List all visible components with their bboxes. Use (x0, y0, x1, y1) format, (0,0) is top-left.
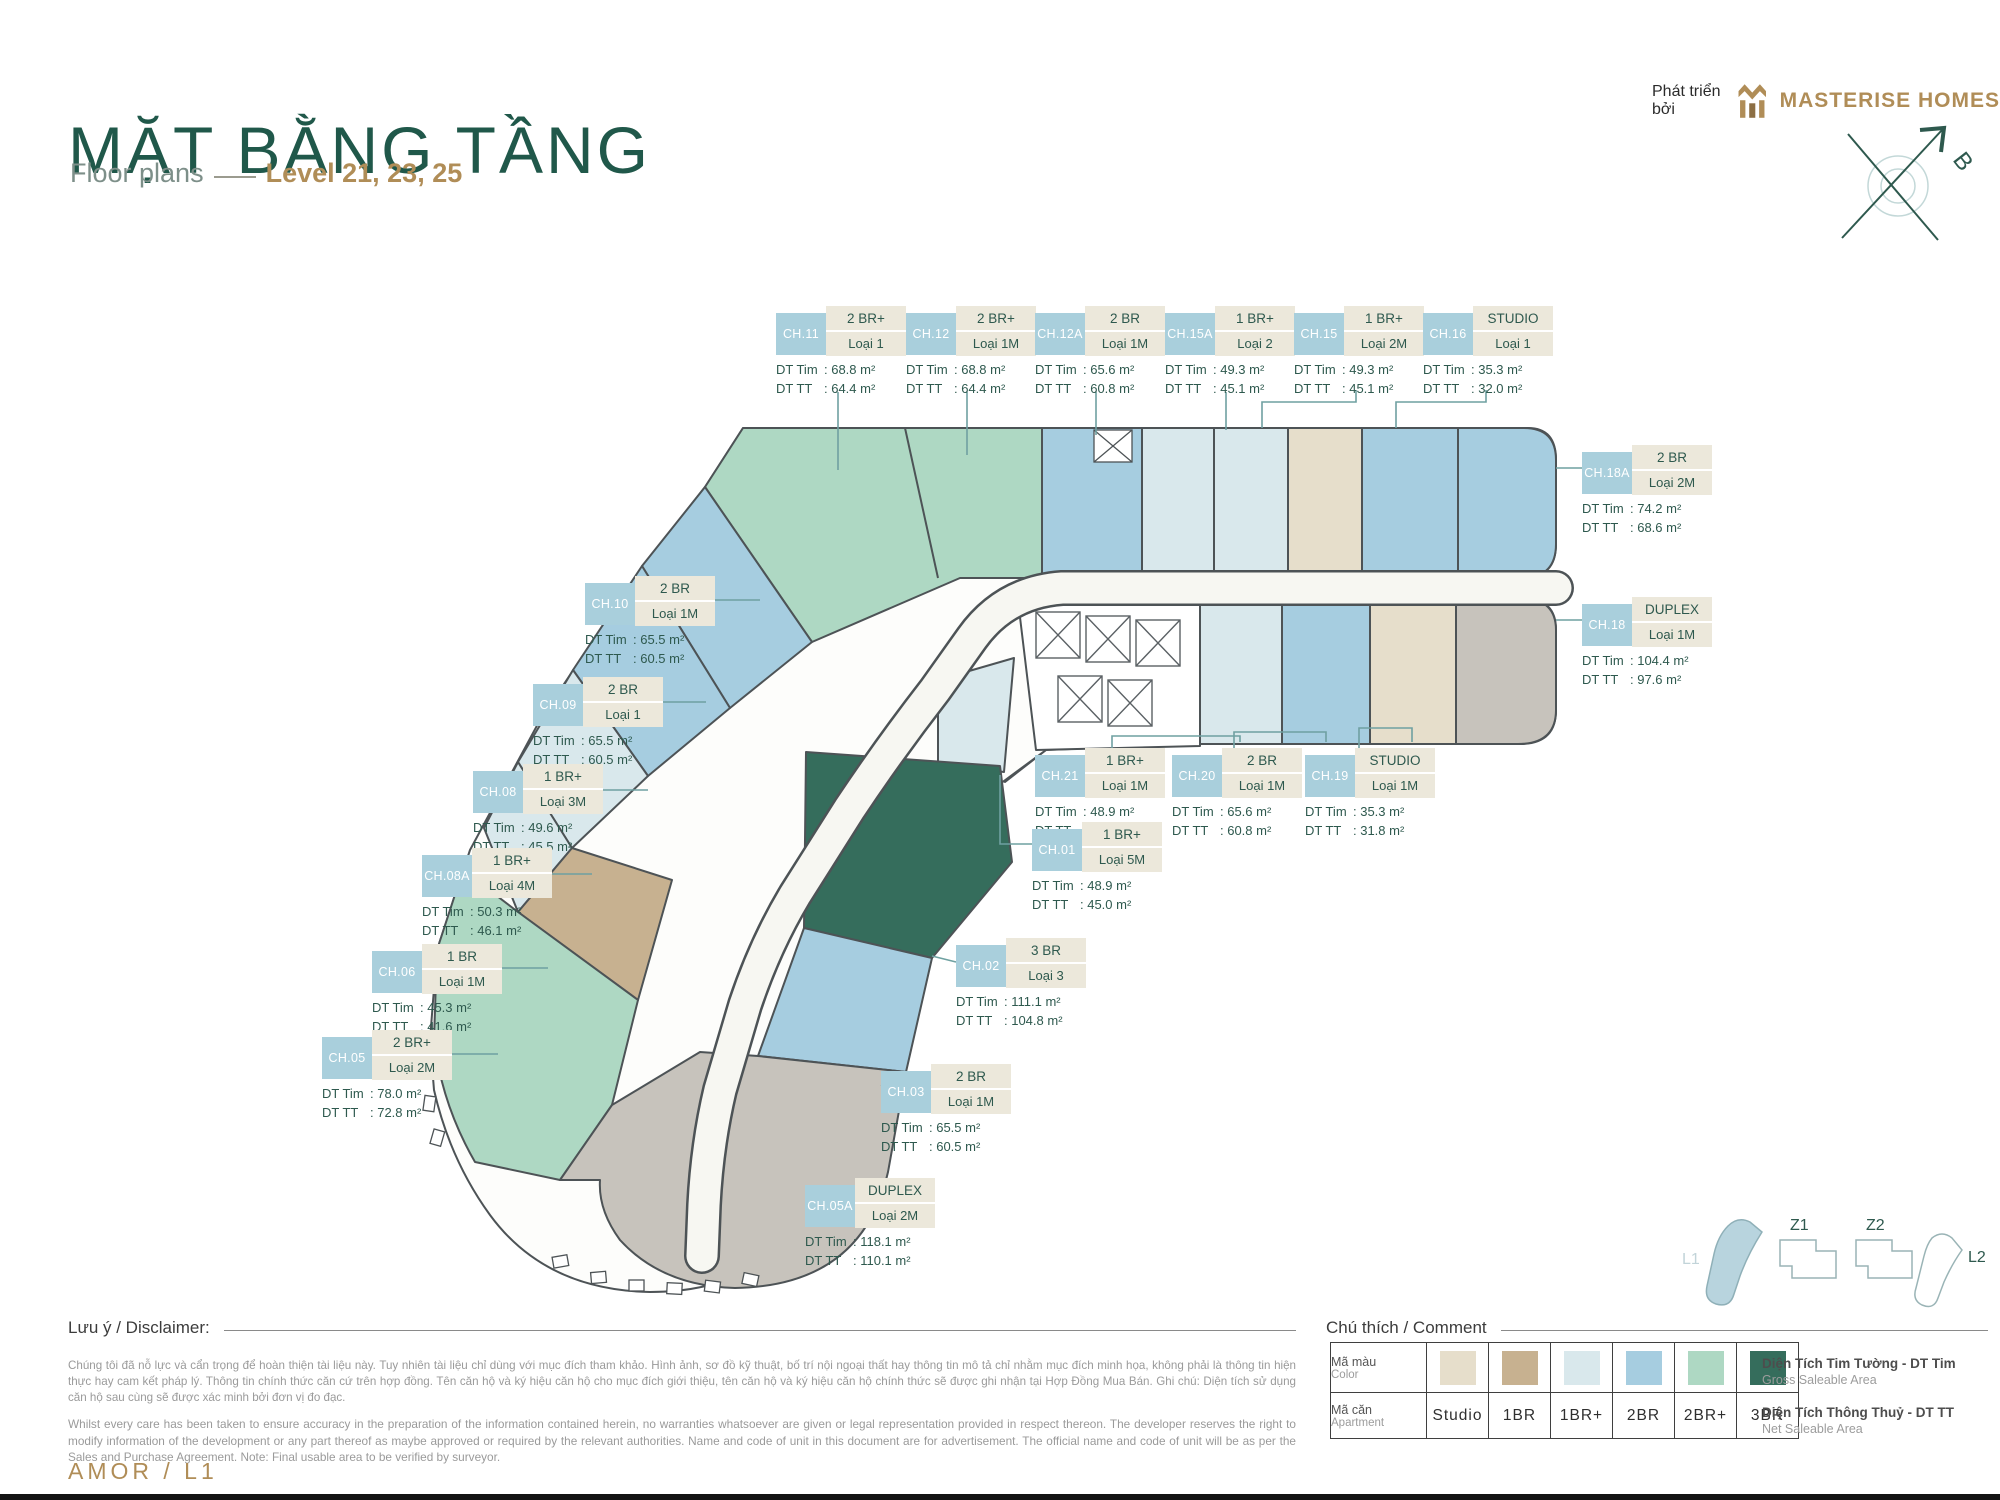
project-code: AMOR / L1 (68, 1458, 218, 1485)
unit-id: CH.01 (1032, 829, 1082, 871)
unit-ch15 (1214, 428, 1288, 578)
unit-id: CH.05A (805, 1185, 855, 1227)
unit-callout-ch-18a: CH.18A2 BRLoại 2MDT Tim: 74.2 m²DT TT: 6… (1582, 445, 1712, 538)
legend-name-1br: 1BR (1489, 1393, 1551, 1439)
area-def-net: Diện Tích Thông Thuỷ - DT TT Net Saleabl… (1762, 1405, 1956, 1436)
legend-swatch-2br (1613, 1343, 1675, 1393)
unit-type: 1 BRLoại 1M (422, 944, 502, 994)
unit-type: 2 BR+Loại 1M (956, 306, 1036, 356)
area-definitions: Diện Tích Tim Tường - DT Tim Gross Salea… (1762, 1356, 1956, 1454)
disclaimer-english: Whilst every care has been taken to ensu… (68, 1416, 1296, 1466)
unit-id: CH.15A (1165, 313, 1215, 355)
unit-callout-ch-02: CH.023 BRLoại 3DT Tim: 111.1 m²DT TT: 10… (956, 938, 1086, 1031)
unit-id: CH.18 (1582, 604, 1632, 646)
unit-id: CH.12A (1035, 313, 1085, 355)
unit-id: CH.06 (372, 951, 422, 993)
legend-heading-text: Chú thích / Comment (1326, 1318, 1487, 1338)
unit-id: CH.08A (422, 855, 472, 897)
unit-type: 1 BR+Loại 4M (472, 848, 552, 898)
unit-callout-ch-09: CH.092 BRLoại 1DT Tim: 65.5 m²DT TT: 60.… (533, 677, 663, 770)
unit-type: STUDIOLoại 1M (1355, 748, 1435, 798)
unit-areas: DT Tim: 65.5 m²DT TT: 60.5 m² (881, 1119, 1011, 1157)
unit-callout-ch-15: CH.151 BR+Loại 2MDT Tim: 49.3 m²DT TT: 4… (1294, 306, 1424, 399)
unit-id: CH.12 (906, 313, 956, 355)
unit-callout-ch-11: CH.112 BR+Loại 1DT Tim: 68.8 m²DT TT: 64… (776, 306, 906, 399)
unit-id: CH.08 (473, 771, 523, 813)
unit-type: 2 BRLoại 1M (931, 1064, 1011, 1114)
unit-callout-ch-12a: CH.12A2 BRLoại 1MDT Tim: 65.6 m²DT TT: 6… (1035, 306, 1165, 399)
unit-ch18a (1458, 428, 1556, 578)
unit-ch19 (1370, 598, 1456, 744)
keyplan-label-z1: Z1 (1790, 1217, 1809, 1234)
unit-id: CH.02 (956, 945, 1006, 987)
disclaimer-heading-text: Lưu ý / Disclaimer: (68, 1318, 210, 1338)
unit-callout-ch-08a: CH.08A1 BR+Loại 4MDT Tim: 50.3 m²DT TT: … (422, 848, 552, 941)
unit-type: 2 BRLoại 1M (635, 576, 715, 626)
unit-type: 1 BR+Loại 2M (1344, 306, 1424, 356)
unit-areas: DT Tim: 35.3 m²DT TT: 31.8 m² (1305, 803, 1435, 841)
unit-callout-ch-15a: CH.15A1 BR+Loại 2DT Tim: 49.3 m²DT TT: 4… (1165, 306, 1295, 399)
unit-areas: DT Tim: 65.6 m²DT TT: 60.8 m² (1035, 361, 1165, 399)
unit-ch18 (1456, 598, 1556, 744)
legend-rule (1501, 1330, 1988, 1331)
keyplan-building-z2 (1856, 1240, 1912, 1278)
unit-areas: DT Tim: 118.1 m²DT TT: 110.1 m² (805, 1233, 935, 1271)
unit-areas: DT Tim: 35.3 m²DT TT: 32.0 m² (1423, 361, 1553, 399)
unit-type: DUPLEXLoại 1M (1632, 597, 1712, 647)
unit-callout-ch-08: CH.081 BR+Loại 3MDT Tim: 49.6 m²DT TT: 4… (473, 764, 603, 857)
key-plan: L1 Z1 Z2 L2 (1680, 1198, 2000, 1316)
unit-id: CH.20 (1172, 755, 1222, 797)
unit-type: 1 BR+Loại 1M (1085, 748, 1165, 798)
unit-areas: DT Tim: 50.3 m²DT TT: 46.1 m² (422, 903, 552, 941)
unit-type: 2 BRLoại 2M (1632, 445, 1712, 495)
unit-callout-ch-05: CH.052 BR+Loại 2MDT Tim: 78.0 m²DT TT: 7… (322, 1030, 452, 1123)
legend-swatch-2br+ (1675, 1343, 1737, 1393)
unit-callout-ch-05a: CH.05ADUPLEXLoại 2MDT Tim: 118.1 m²DT TT… (805, 1178, 935, 1271)
legend-heading: Chú thích / Comment (1326, 1318, 1988, 1338)
legend-swatch-1br (1489, 1343, 1551, 1393)
unit-callout-ch-12: CH.122 BR+Loại 1MDT Tim: 68.8 m²DT TT: 6… (906, 306, 1036, 399)
unit-id: CH.16 (1423, 313, 1473, 355)
unit-type: 3 BRLoại 3 (1006, 938, 1086, 988)
unit-callout-ch-10: CH.102 BRLoại 1MDT Tim: 65.5 m²DT TT: 60… (585, 576, 715, 669)
legend-table: Mã màuColorMã cănApartmentStudio1BR1BR+2… (1330, 1342, 1799, 1439)
legend-apartment-row-label: Mã cănApartment (1331, 1393, 1427, 1439)
keyplan-label-l2: L2 (1968, 1249, 1986, 1266)
unit-id: CH.15 (1294, 313, 1344, 355)
unit-type: 2 BR+Loại 1 (826, 306, 906, 356)
unit-id: CH.09 (533, 684, 583, 726)
keyplan-label-l1: L1 (1682, 1251, 1700, 1268)
unit-type: DUPLEXLoại 2M (855, 1178, 935, 1228)
unit-ch21 (1200, 598, 1282, 744)
floorplan-page: { "header": { "title": "MẶT BẰNG TẦNG", … (0, 0, 2000, 1500)
unit-type: 1 BR+Loại 5M (1082, 822, 1162, 872)
unit-id: CH.11 (776, 313, 826, 355)
disclaimer-vietnamese: Chúng tôi đã nỗ lực và cẩn trọng để hoàn… (68, 1358, 1296, 1407)
disclaimer-rule (224, 1330, 1296, 1331)
area-def-gross-en: Gross Saleable Area (1762, 1373, 1956, 1387)
area-def-net-en: Net Saleable Area (1762, 1422, 1956, 1436)
unit-areas: DT Tim: 104.4 m²DT TT: 97.6 m² (1582, 652, 1712, 690)
unit-ch15a (1142, 428, 1214, 578)
keyplan-label-z2: Z2 (1866, 1217, 1885, 1234)
unit-areas: DT Tim: 78.0 m²DT TT: 72.8 m² (322, 1085, 452, 1123)
unit-id: CH.03 (881, 1071, 931, 1113)
unit-areas: DT Tim: 68.8 m²DT TT: 64.4 m² (776, 361, 906, 399)
area-def-gross: Diện Tích Tim Tường - DT Tim Gross Salea… (1762, 1356, 1956, 1387)
keyplan-building-l2 (1915, 1234, 1962, 1306)
unit-areas: DT Tim: 65.5 m²DT TT: 60.5 m² (585, 631, 715, 669)
unit-id: CH.19 (1305, 755, 1355, 797)
legend-name-studio: Studio (1427, 1393, 1489, 1439)
disclaimer-heading: Lưu ý / Disclaimer: (68, 1318, 1296, 1338)
unit-id: CH.21 (1035, 755, 1085, 797)
unit-id: CH.18A (1582, 452, 1632, 494)
unit-callout-ch-01: CH.011 BR+Loại 5MDT Tim: 48.9 m²DT TT: 4… (1032, 822, 1162, 915)
unit-areas: DT Tim: 49.3 m²DT TT: 45.1 m² (1165, 361, 1295, 399)
legend-name-1br+: 1BR+ (1551, 1393, 1613, 1439)
unit-type: 2 BRLoại 1M (1085, 306, 1165, 356)
unit-type: 2 BRLoại 1 (583, 677, 663, 727)
unit-id: CH.05 (322, 1037, 372, 1079)
unit-areas: DT Tim: 111.1 m²DT TT: 104.8 m² (956, 993, 1086, 1031)
unit-areas: DT Tim: 49.3 m²DT TT: 45.1 m² (1294, 361, 1424, 399)
unit-ch20 (1282, 598, 1370, 744)
unit-callout-ch-19: CH.19STUDIOLoại 1MDT Tim: 35.3 m²DT TT: … (1305, 748, 1435, 841)
keyplan-building-z1 (1780, 1240, 1836, 1278)
legend-name-2br: 2BR (1613, 1393, 1675, 1439)
unit-ch16 (1288, 428, 1362, 578)
unit-areas: DT Tim: 48.9 m²DT TT: 45.0 m² (1032, 877, 1162, 915)
unit-callout-ch-03: CH.032 BRLoại 1MDT Tim: 65.5 m²DT TT: 60… (881, 1064, 1011, 1157)
area-def-net-vi: Diện Tích Thông Thuỷ - DT TT (1762, 1405, 1956, 1420)
unit-type: 2 BR+Loại 2M (372, 1030, 452, 1080)
unit-areas: DT Tim: 68.8 m²DT TT: 64.4 m² (906, 361, 1036, 399)
keyplan-building-l1 (1706, 1220, 1762, 1305)
unit-type: STUDIOLoại 1 (1473, 306, 1553, 356)
unit-type: 2 BRLoại 1M (1222, 748, 1302, 798)
area-def-gross-vi: Diện Tích Tim Tường - DT Tim (1762, 1356, 1956, 1371)
unit-id: CH.10 (585, 583, 635, 625)
bottom-bar (0, 1494, 2000, 1500)
legend-swatch-1br+ (1551, 1343, 1613, 1393)
unit-callout-ch-16: CH.16STUDIOLoại 1DT Tim: 35.3 m²DT TT: 3… (1423, 306, 1553, 399)
unit-callout-ch-18: CH.18DUPLEXLoại 1MDT Tim: 104.4 m²DT TT:… (1582, 597, 1712, 690)
unit-type: 1 BR+Loại 3M (523, 764, 603, 814)
unit-callout-ch-20: CH.202 BRLoại 1MDT Tim: 65.6 m²DT TT: 60… (1172, 748, 1302, 841)
unit-ch17 (1362, 428, 1458, 578)
legend-color-row-label: Mã màuColor (1331, 1343, 1427, 1393)
legend-swatch-studio (1427, 1343, 1489, 1393)
unit-callout-ch-06: CH.061 BRLoại 1MDT Tim: 45.3 m²DT TT: 41… (372, 944, 502, 1037)
unit-areas: DT Tim: 65.6 m²DT TT: 60.8 m² (1172, 803, 1302, 841)
unit-areas: DT Tim: 74.2 m²DT TT: 68.6 m² (1582, 500, 1712, 538)
legend-name-2br+: 2BR+ (1675, 1393, 1737, 1439)
unit-type: 1 BR+Loại 2 (1215, 306, 1295, 356)
